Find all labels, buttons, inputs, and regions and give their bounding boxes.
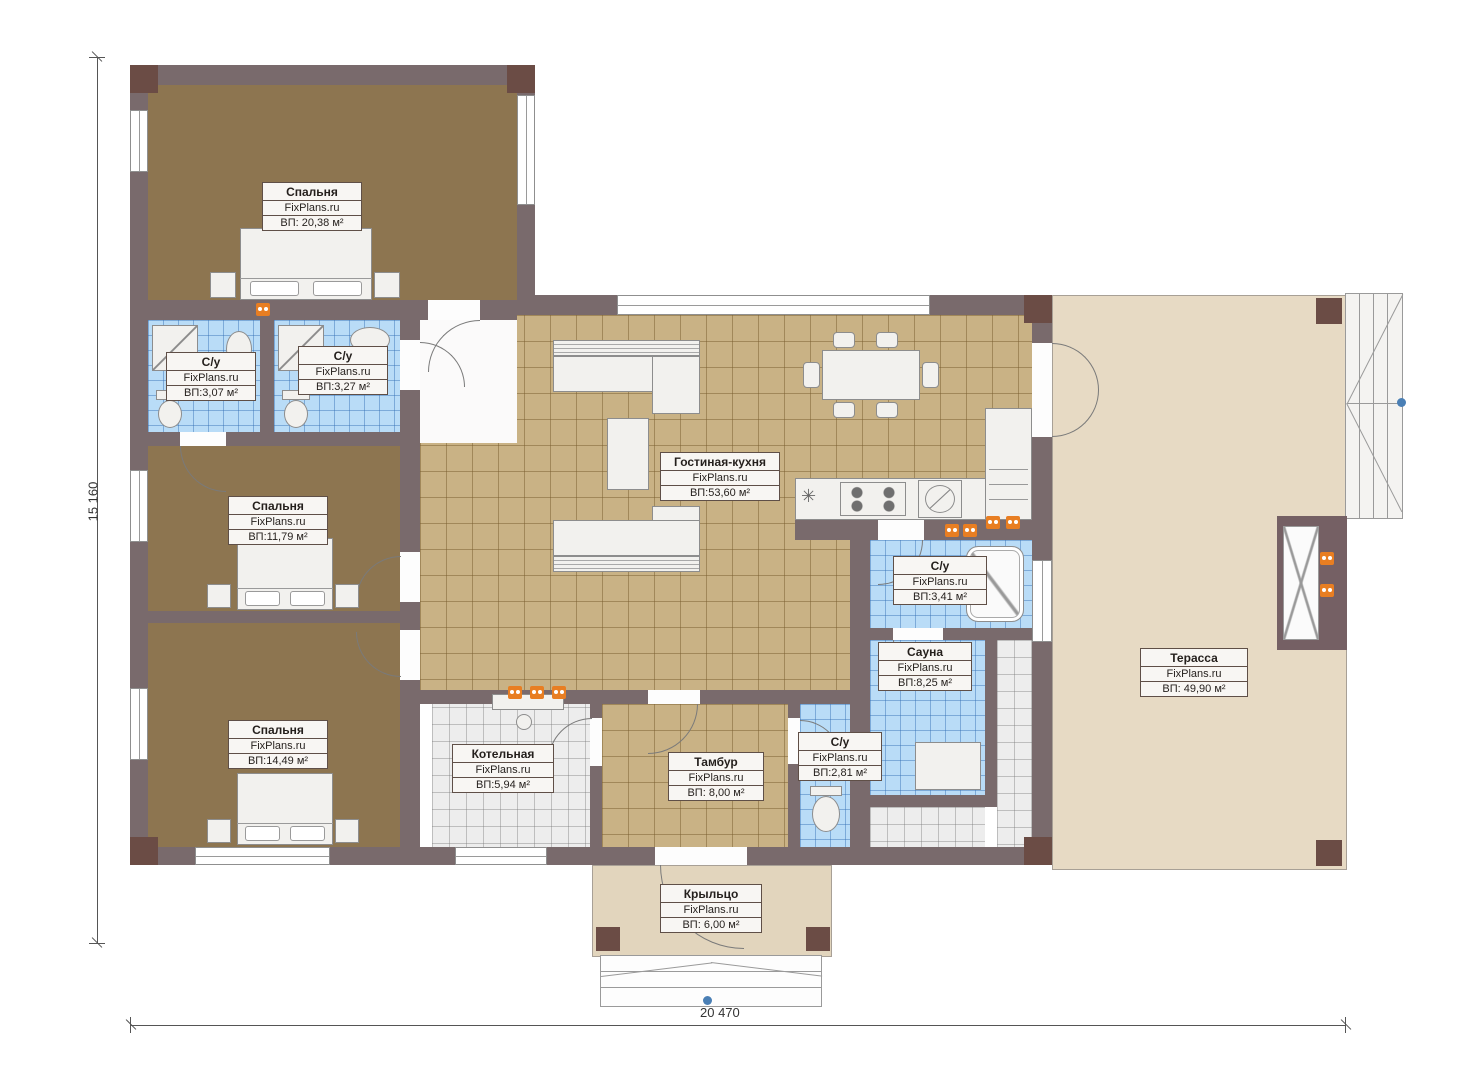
door-opening [428, 300, 480, 320]
outlet-icon [256, 303, 270, 316]
dining-chair [876, 402, 898, 418]
pillow [290, 591, 326, 606]
fridge-line [989, 484, 1028, 485]
pillow [313, 281, 362, 296]
nightstand [207, 584, 231, 608]
pillow [290, 826, 326, 841]
toilet [812, 796, 840, 832]
bed [237, 538, 333, 610]
room-brand: FixPlans.ru [453, 762, 553, 777]
room-brand: FixPlans.ru [879, 660, 971, 675]
sink-bowl [925, 485, 955, 513]
fridge-line [989, 499, 1028, 500]
room-label-bedroom-low: Спальня FixPlans.ru ВП:14,49 м² [228, 720, 328, 769]
outlet-icon [552, 686, 566, 699]
room-name: Спальня [229, 497, 327, 514]
window [1032, 560, 1052, 642]
nightstand [210, 272, 236, 298]
window [195, 847, 330, 865]
outlet-icon [1006, 516, 1020, 529]
terrace-post [1316, 840, 1342, 866]
corner-post [130, 65, 158, 93]
room-name: Спальня [229, 721, 327, 738]
room-area: ВП: 6,00 м² [661, 917, 761, 932]
dining-chair [803, 362, 820, 388]
room-area: ВП:3,07 м² [167, 385, 255, 400]
room-area: ВП: 49,90 м² [1141, 681, 1247, 696]
fireplace-inner [1283, 526, 1319, 640]
bed [237, 773, 333, 845]
room-name: С/у [167, 353, 255, 370]
door-opening [1032, 343, 1052, 437]
coffee-table [607, 418, 649, 490]
sofa [553, 520, 700, 556]
room-area: ВП:2,81 м² [799, 765, 881, 780]
window [130, 110, 148, 172]
wall [130, 65, 535, 85]
stove [840, 482, 906, 516]
door-opening [893, 628, 943, 640]
blanket-line [237, 823, 333, 824]
outlet-icon [530, 686, 544, 699]
room-brand: FixPlans.ru [1141, 666, 1247, 681]
room-name: С/у [299, 347, 387, 364]
window [455, 847, 547, 865]
sofa-back [553, 340, 700, 356]
room-brand: FixPlans.ru [229, 514, 327, 529]
sofa-chaise [652, 356, 700, 414]
dimension-label-width: 20 470 [700, 1005, 740, 1020]
door-opening [878, 520, 924, 540]
room-brand: FixPlans.ru [263, 200, 361, 215]
dining-chair [922, 362, 939, 388]
room-brand: FixPlans.ru [669, 770, 763, 785]
window [617, 295, 930, 315]
room-name: Котельная [453, 745, 553, 762]
room-brand: FixPlans.ru [167, 370, 255, 385]
room-label-bath-1: С/у FixPlans.ru ВП:3,07 м² [166, 352, 256, 401]
toilet-tank [810, 786, 842, 796]
marker-dot [1397, 398, 1406, 407]
floor-corridor-2 [870, 807, 985, 847]
door-opening [648, 690, 700, 704]
dining-chair [833, 332, 855, 348]
wall [260, 320, 274, 432]
room-area: ВП:53,60 м² [661, 485, 779, 500]
room-area: ВП:11,79 м² [229, 529, 327, 544]
room-brand: FixPlans.ru [299, 364, 387, 379]
window [517, 95, 535, 205]
window [130, 470, 148, 542]
wall [590, 690, 602, 847]
dining-chair [876, 332, 898, 348]
room-brand: FixPlans.ru [661, 470, 779, 485]
dining-chair [833, 402, 855, 418]
wall [130, 320, 148, 865]
pillow [250, 281, 299, 296]
outlet-icon [986, 516, 1000, 529]
pillow [245, 591, 281, 606]
outlet-icon [963, 524, 977, 537]
wall [130, 65, 148, 320]
sauna-bench [915, 742, 981, 790]
toilet [158, 400, 182, 428]
room-label-sauna: Сауна FixPlans.ru ВП:8,25 м² [878, 642, 972, 691]
room-label-vestibule: Тамбур FixPlans.ru ВП: 8,00 м² [668, 752, 764, 801]
stair-arrow-base [1347, 403, 1402, 404]
pillow [245, 826, 281, 841]
outlet-icon [1320, 552, 1334, 565]
room-label-bedroom-top: Спальня FixPlans.ru ВП: 20,38 м² [262, 182, 362, 231]
door-opening [400, 340, 420, 390]
room-name: Сауна [879, 643, 971, 660]
room-label-bath-4: С/у FixPlans.ru ВП:2,81 м² [798, 732, 882, 781]
room-area: ВП:8,25 м² [879, 675, 971, 690]
wall [985, 640, 997, 795]
step-line [600, 971, 822, 972]
floor-corridor-1 [997, 640, 1032, 847]
door-opening [400, 630, 420, 680]
room-label-bedroom-mid: Спальня FixPlans.ru ВП:11,79 м² [228, 496, 328, 545]
marker-dot [703, 996, 712, 1005]
blanket-line [237, 588, 333, 589]
room-label-bath-3: С/у FixPlans.ru ВП:3,41 м² [893, 556, 987, 605]
floor-plan: ✳ Спальня FixPlans.ru ВП: 20,38 м² С/у [0, 0, 1474, 1080]
fridge [985, 408, 1032, 520]
room-area: ВП:3,41 м² [894, 589, 986, 604]
nightstand [335, 819, 359, 843]
wall [420, 690, 850, 704]
corner-post [1024, 837, 1052, 865]
outlet-icon [945, 524, 959, 537]
wall [148, 611, 400, 623]
fridge-line [989, 469, 1028, 470]
room-brand: FixPlans.ru [799, 750, 881, 765]
nightstand [207, 819, 231, 843]
terrace-stairs [1345, 293, 1403, 519]
dining-table [822, 350, 920, 400]
room-area: ВП:14,49 м² [229, 753, 327, 768]
room-area: ВП: 20,38 м² [263, 215, 361, 230]
window [130, 688, 148, 760]
corner-post [130, 837, 158, 865]
room-name: С/у [799, 733, 881, 750]
room-label-boiler: Котельная FixPlans.ru ВП:5,94 м² [452, 744, 554, 793]
outlet-icon [508, 686, 522, 699]
outlet-icon [1320, 584, 1334, 597]
stair-line [1373, 293, 1374, 519]
boiler-tank [516, 714, 532, 730]
room-brand: FixPlans.ru [661, 902, 761, 917]
room-label-bath-2: С/у FixPlans.ru ВП:3,27 м² [298, 346, 388, 395]
porch-post [806, 927, 830, 951]
room-name: Спальня [263, 183, 361, 200]
room-name: Терасса [1141, 649, 1247, 666]
toilet [284, 400, 308, 428]
nightstand [335, 584, 359, 608]
room-name: С/у [894, 557, 986, 574]
step-line [600, 987, 822, 988]
wall [870, 795, 997, 807]
kitchen-sink [918, 480, 962, 518]
corner-post [1024, 295, 1052, 323]
terrace-post [1316, 298, 1342, 324]
bed [240, 228, 372, 300]
dimension-label-height: 15 160 [86, 467, 101, 537]
nightstand [374, 272, 400, 298]
dimension-line-horizontal [130, 1025, 1345, 1026]
room-name: Тамбур [669, 753, 763, 770]
room-area: ВП: 8,00 м² [669, 785, 763, 800]
vent-icon: ✳ [801, 486, 816, 507]
room-brand: FixPlans.ru [229, 738, 327, 753]
room-name: Крыльцо [661, 885, 761, 902]
door-opening [655, 847, 747, 865]
room-label-living: Гостиная-кухня FixPlans.ru ВП:53,60 м² [660, 452, 780, 501]
room-label-terrace: Терасса FixPlans.ru ВП: 49,90 м² [1140, 648, 1248, 697]
sofa-back [553, 556, 700, 572]
wall [850, 540, 870, 847]
door-opening [400, 552, 420, 602]
room-label-porch: Крыльцо FixPlans.ru ВП: 6,00 м² [660, 884, 762, 933]
blanket-line [240, 278, 372, 279]
stair-line [1359, 293, 1360, 519]
porch-post [596, 927, 620, 951]
corner-post [507, 65, 535, 93]
room-brand: FixPlans.ru [894, 574, 986, 589]
door-opening [180, 432, 226, 446]
room-name: Гостиная-кухня [661, 453, 779, 470]
room-area: ВП:3,27 м² [299, 379, 387, 394]
room-area: ВП:5,94 м² [453, 777, 553, 792]
